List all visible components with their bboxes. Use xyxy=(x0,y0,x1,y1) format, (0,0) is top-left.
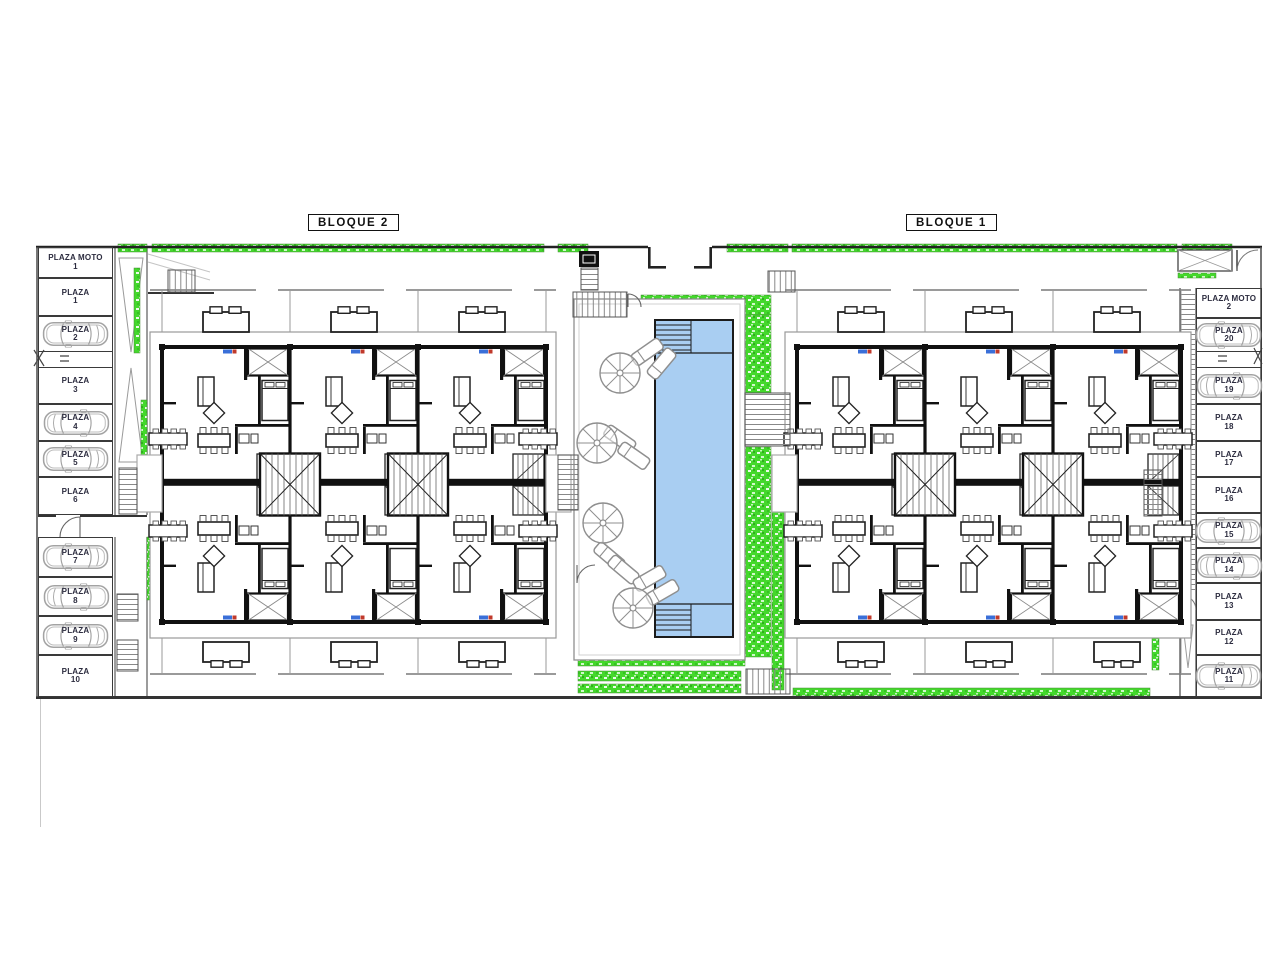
parking-space: PLAZA4 xyxy=(38,404,113,441)
bloque-2-building-plan xyxy=(149,290,557,674)
bloque-1-building-plan xyxy=(784,290,1192,674)
parking-space: PLAZA11 xyxy=(1196,655,1262,697)
bloque-1-label: BLOQUE 1 xyxy=(906,214,997,231)
parking-space: PLAZA6 xyxy=(38,477,113,515)
parking-space: PLAZA18 xyxy=(1196,404,1262,441)
site-plan-canvas: BLOQUE 2 BLOQUE 1 PLAZA MOTO1 PLAZA1 PLA… xyxy=(0,0,1280,960)
parking-space: PLAZA7 xyxy=(38,537,113,577)
parking-space: PLAZA9 xyxy=(38,616,113,655)
access-door-zone xyxy=(38,515,113,537)
parking-space: PLAZA5 xyxy=(38,441,113,477)
parking-space: PLAZA20 xyxy=(1196,318,1262,352)
parking-space: PLAZA19 xyxy=(1196,367,1262,404)
pedestrian-gap xyxy=(38,352,113,367)
bloque-2-label: BLOQUE 2 xyxy=(308,214,399,231)
utility-box xyxy=(579,251,599,267)
pedestrian-gap xyxy=(1196,352,1262,367)
parking-space: PLAZA13 xyxy=(1196,583,1262,620)
parking-space: PLAZA MOTO2 xyxy=(1196,288,1262,318)
parking-space: PLAZA2 xyxy=(38,316,113,352)
parking-column-left: PLAZA MOTO1 PLAZA1 PLAZA2 PLAZA3 PLAZA4 … xyxy=(38,0,113,960)
parking-space: PLAZA1 xyxy=(38,278,113,316)
parking-space: PLAZA12 xyxy=(1196,620,1262,655)
parking-space: PLAZA8 xyxy=(38,577,113,616)
entrance-vestibule xyxy=(648,247,712,269)
parking-space: PLAZA17 xyxy=(1196,441,1262,477)
parking-space: PLAZA MOTO1 xyxy=(38,247,113,278)
parking-space: PLAZA14 xyxy=(1196,548,1262,583)
parking-column-right: PLAZA MOTO2 PLAZA20 PLAZA19 PLAZA18 PLAZ… xyxy=(1196,0,1262,960)
parking-space: PLAZA15 xyxy=(1196,513,1262,548)
site-plan-drawing xyxy=(0,0,1280,960)
parking-space: PLAZA10 xyxy=(38,655,113,697)
parking-space: PLAZA16 xyxy=(1196,477,1262,513)
parking-space: PLAZA3 xyxy=(38,367,113,404)
